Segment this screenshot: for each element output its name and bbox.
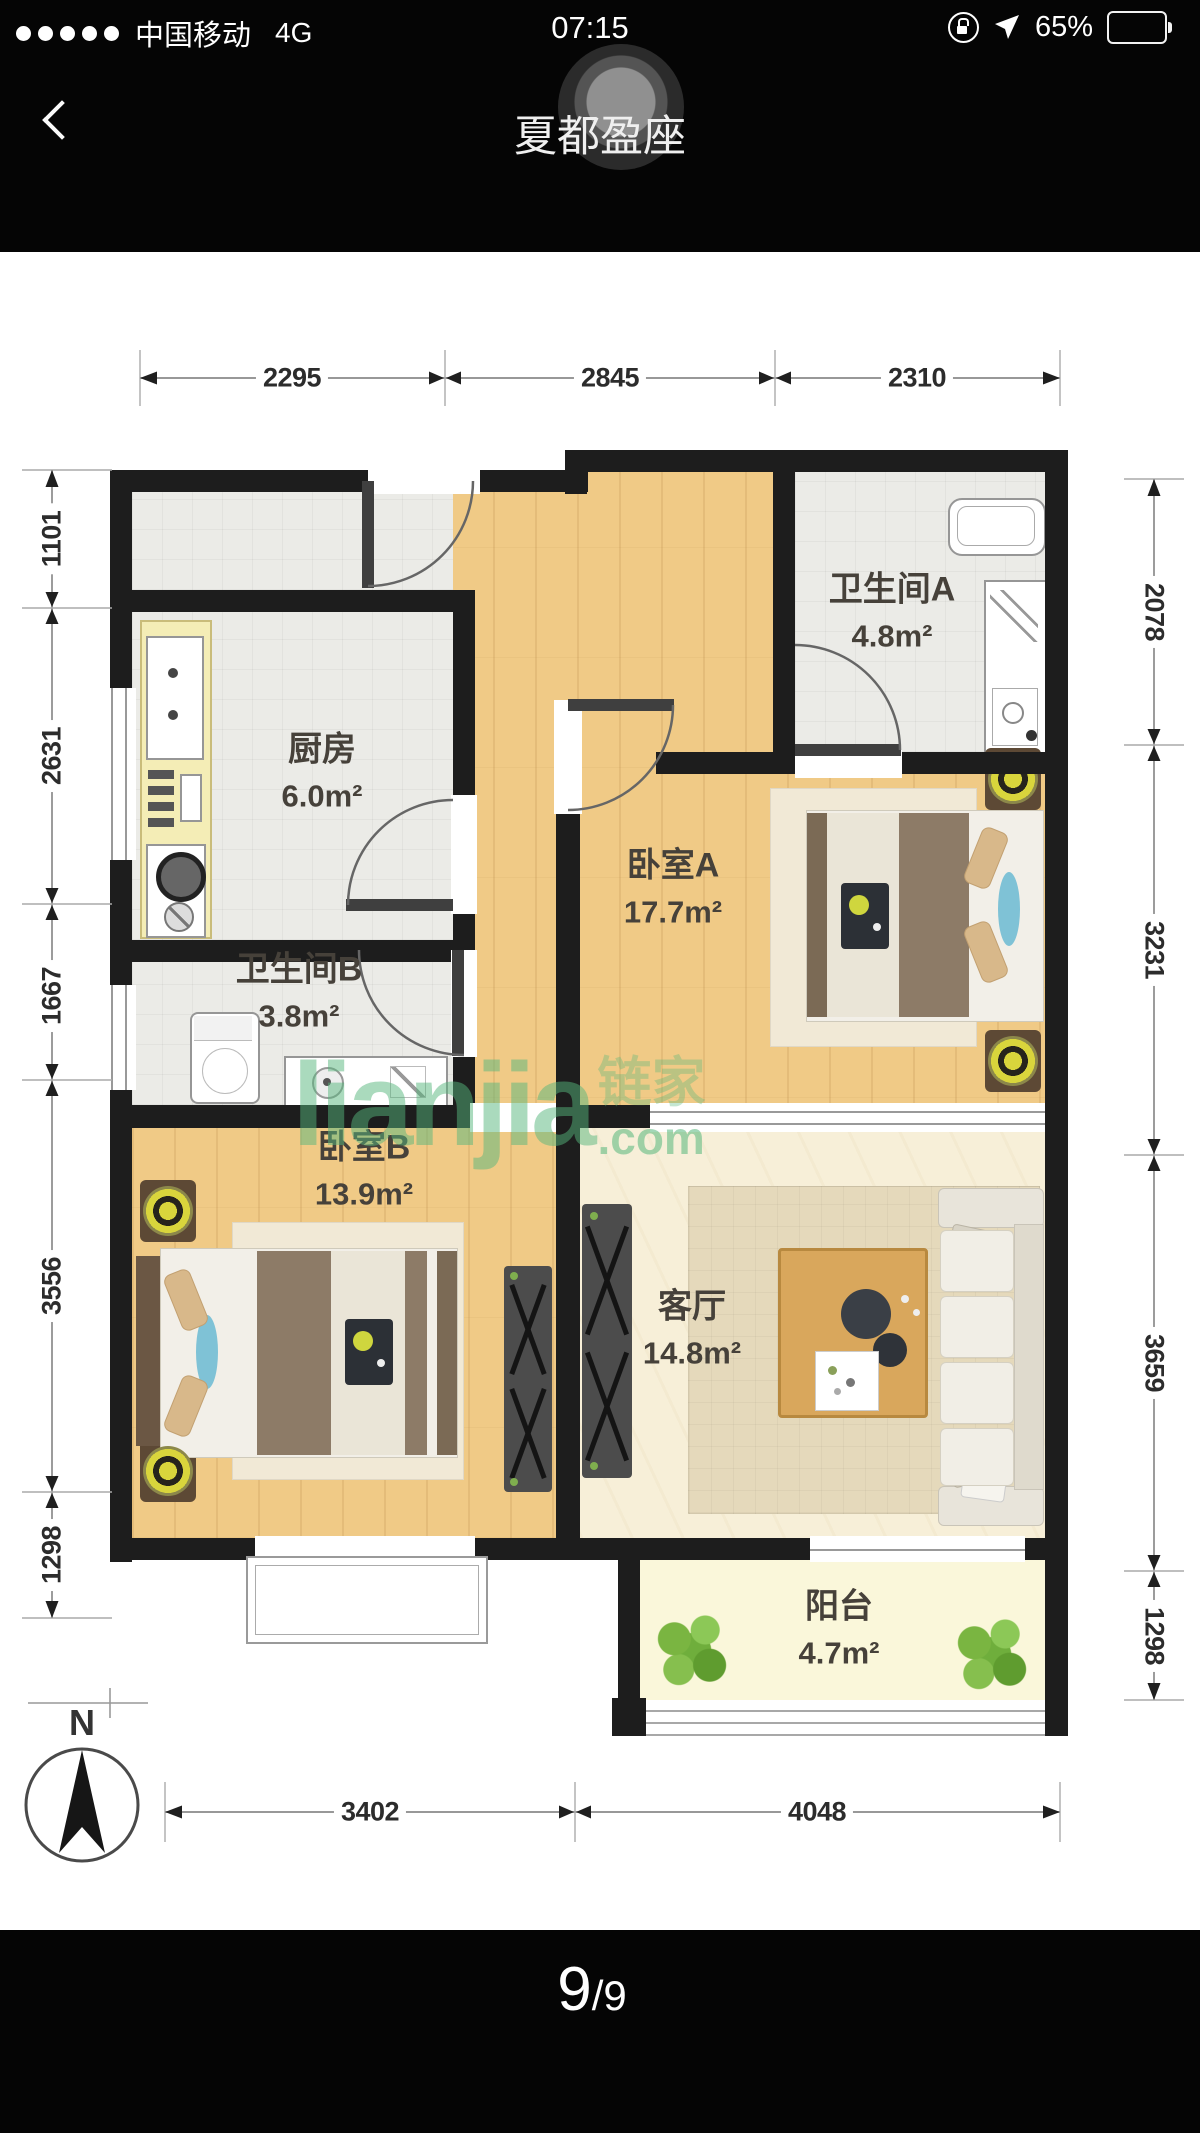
footer-bar: 9/9 [0, 1930, 1200, 2133]
tv-panel-bedroom-b [504, 1266, 552, 1492]
bathtub [948, 498, 1046, 556]
sofa-cushion [940, 1296, 1014, 1358]
clock-label: 07:15 [490, 10, 690, 46]
room-label-bathroom-b: 卫生间B 3.8m² [236, 947, 363, 1038]
bed-tray [841, 883, 889, 949]
wall-segment [110, 1538, 255, 1560]
dim-label: 2845 [574, 363, 646, 394]
lamp-icon [988, 1036, 1038, 1086]
sofa-cushion [940, 1428, 1014, 1486]
washer-drum [156, 852, 206, 902]
dim-label: 1298 [1139, 1600, 1170, 1672]
dim-label: 3659 [1139, 1327, 1170, 1399]
room-label-bathroom-a: 卫生间A 4.8m² [829, 567, 956, 658]
floorplan-image[interactable]: 卫生间A 4.8m² 厨房 6.0m² 卧室A 17.7m² 卫生间B 3.8m… [0, 0, 1200, 1930]
table-book [815, 1351, 879, 1411]
coffee-table [778, 1248, 928, 1418]
window [104, 688, 136, 860]
sofa-cushion [940, 1362, 1014, 1424]
balcony-window [810, 1536, 1025, 1562]
north-arrow-icon [59, 1750, 105, 1853]
wall-segment [556, 1128, 580, 1538]
orientation-lock-icon [948, 12, 979, 43]
room-label-bedroom-b: 卧室B 13.9m² [315, 1125, 413, 1216]
washer-dial [164, 902, 194, 932]
door-opening-bathroom-a [795, 750, 902, 778]
dim-label: 1298 [37, 1519, 68, 1591]
dim-label: 3556 [37, 1250, 68, 1322]
sofa-armrest [938, 1188, 1044, 1228]
dim-label: 1667 [37, 960, 68, 1032]
dim-label: 2295 [256, 363, 328, 394]
bay-window [246, 1556, 488, 1644]
signal-strength-icon [16, 26, 119, 41]
location-icon [993, 13, 1021, 41]
page-indicator: 9/9 [557, 1954, 627, 2025]
north-label: N [69, 1702, 95, 1744]
dim-label: 2631 [37, 720, 68, 792]
dim-label: 3231 [1139, 914, 1170, 986]
wall-segment [773, 472, 795, 752]
plant-icon [948, 1612, 1036, 1700]
lamp-icon [143, 1446, 193, 1496]
vanity-bathroom-a [984, 580, 1048, 756]
room-label-balcony: 阳台 4.7m² [799, 1584, 880, 1675]
page-title: 夏都盈座 [0, 102, 1200, 164]
bed-runner [998, 872, 1020, 946]
carrier-label: 中国移动 [135, 12, 251, 54]
room-label-kitchen: 厨房 6.0m² [282, 727, 363, 818]
dim-label: 2078 [1139, 576, 1170, 648]
window [104, 985, 136, 1090]
network-type-label: 4G [275, 17, 312, 49]
wall-segment [1025, 1538, 1068, 1560]
wall-segment [618, 1560, 640, 1702]
bed-tray [345, 1319, 393, 1385]
door-opening-entry [368, 468, 480, 494]
door-opening-bedroom-a [554, 700, 582, 814]
battery-icon [1107, 11, 1172, 44]
page-total: 9 [603, 1972, 626, 2020]
sink-drain [168, 668, 178, 678]
doorway-bedroom-b [470, 1103, 556, 1132]
wall-segment [110, 590, 475, 612]
washing-machine [146, 844, 206, 938]
kitchen-sink [146, 636, 204, 760]
balcony-railing [640, 1700, 1045, 1736]
page-current: 9 [557, 1954, 591, 2025]
sofa-cushion [940, 1230, 1014, 1292]
entry-floor [132, 492, 453, 590]
wall-segment [565, 450, 587, 494]
dim-label: 4048 [781, 1797, 853, 1828]
wall-segment [475, 1538, 810, 1560]
glass-partition [650, 1103, 1045, 1132]
header-bar: 中国移动 4G 07:15 65% 夏都盈座 [0, 0, 1200, 252]
battery-percentage: 65% [1035, 11, 1093, 44]
status-right: 65% [948, 10, 1172, 44]
plant-icon [648, 1608, 736, 1696]
page-separator: / [592, 1972, 604, 2020]
tv-panel-living [582, 1204, 632, 1478]
sink-drain [168, 710, 178, 720]
dim-label: 3402 [334, 1797, 406, 1828]
kitchen-hob [180, 774, 202, 822]
lamp-icon [143, 1186, 193, 1236]
dim-label: 2310 [881, 363, 953, 394]
wall-segment [565, 450, 1068, 472]
stove [148, 770, 176, 832]
room-label-bedroom-a: 卧室A 17.7m² [624, 843, 722, 934]
headboard [136, 1256, 160, 1446]
status-left: 中国移动 4G [16, 12, 312, 54]
wall-segment [612, 1698, 646, 1736]
compass-circle [26, 1749, 138, 1861]
room-label-living: 客厅 14.8m² [643, 1284, 741, 1375]
dim-label: 1101 [37, 504, 68, 575]
vanity-bathroom-b [284, 1056, 448, 1108]
sofa-back [1014, 1224, 1044, 1490]
door-opening-bathroom-b [451, 950, 477, 1057]
door-opening-kitchen [451, 795, 477, 914]
wall-segment [110, 470, 368, 492]
phone-screen: 卫生间A 4.8m² 厨房 6.0m² 卧室A 17.7m² 卫生间B 3.8m… [0, 0, 1200, 2133]
